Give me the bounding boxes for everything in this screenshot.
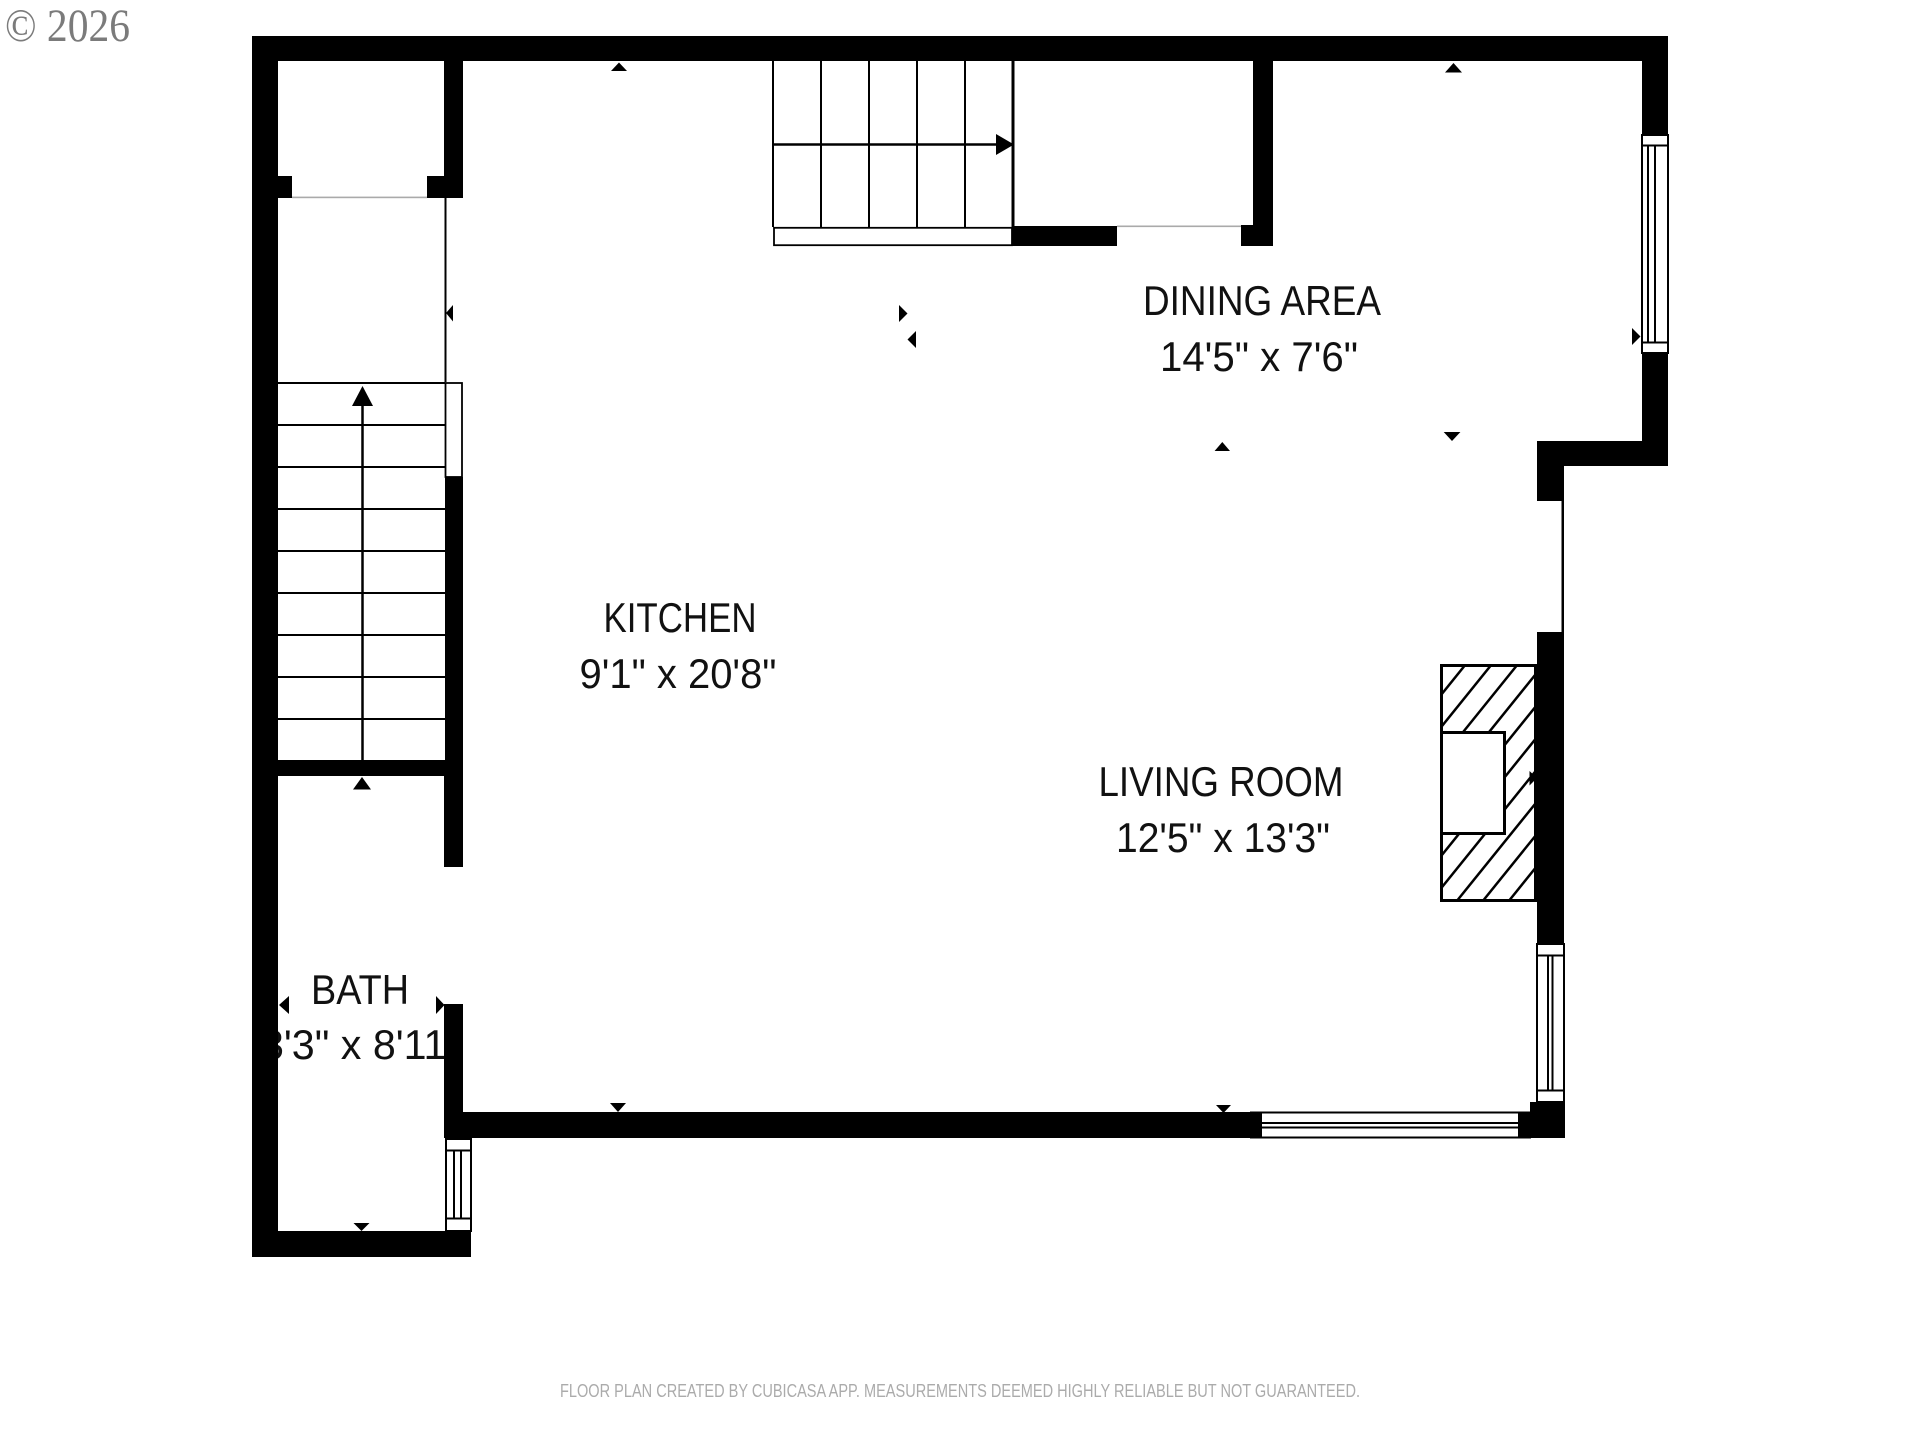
svg-text:FLOOR PLAN CREATED BY CUBICASA: FLOOR PLAN CREATED BY CUBICASA APP. MEAS…	[560, 1380, 1360, 1401]
svg-text:KITCHEN: KITCHEN	[604, 594, 757, 641]
svg-text:9'1" x 20'8": 9'1" x 20'8"	[580, 650, 777, 697]
svg-text:LIVING ROOM: LIVING ROOM	[1099, 758, 1344, 805]
svg-text:© 2026: © 2026	[5, 0, 130, 52]
svg-text:DINING AREA: DINING AREA	[1143, 277, 1381, 324]
svg-text:14'5" x 7'6": 14'5" x 7'6"	[1160, 333, 1358, 380]
svg-text:BATH: BATH	[311, 966, 409, 1013]
svg-text:12'5" x 13'3": 12'5" x 13'3"	[1116, 814, 1330, 861]
svg-text:3'3" x 8'11": 3'3" x 8'11"	[261, 1021, 461, 1068]
